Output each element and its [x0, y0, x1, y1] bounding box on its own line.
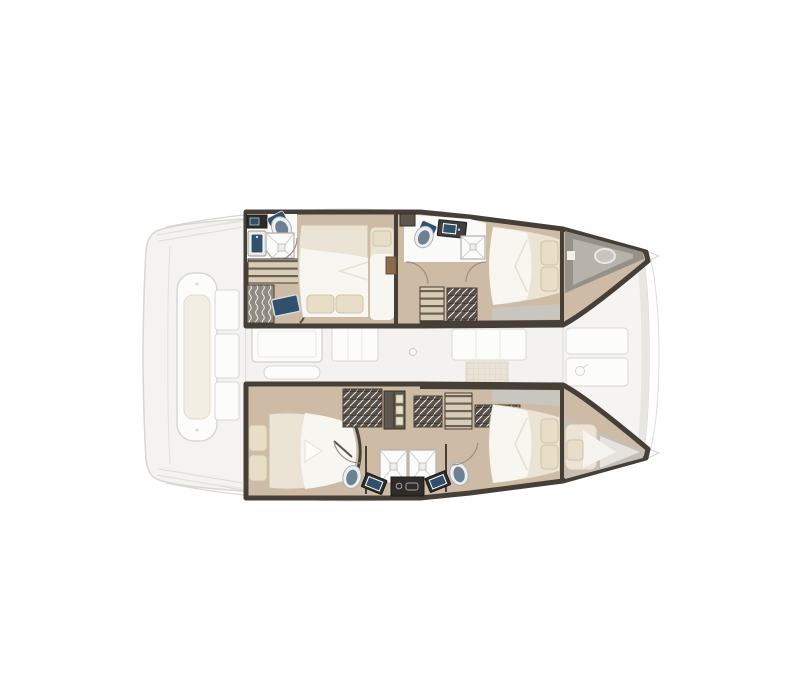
bench-seat — [264, 366, 320, 379]
pillow — [567, 440, 583, 460]
galley-island — [332, 326, 378, 361]
port-hull — [246, 210, 648, 326]
cockpit-seats — [215, 290, 239, 420]
inboard-bulkhead-band — [420, 323, 562, 324]
pillow — [249, 455, 267, 481]
saloon — [246, 326, 563, 389]
bench-fitting — [196, 429, 199, 432]
bed-duvet — [489, 227, 531, 305]
bench-cushion — [184, 295, 210, 419]
bench-fitting — [196, 283, 199, 286]
wardrobe-shelves — [248, 259, 302, 283]
starboard-hull — [246, 384, 648, 498]
companionway-steps — [420, 287, 444, 322]
cockpit — [143, 219, 246, 491]
pillow — [541, 445, 558, 469]
shower-drain — [278, 244, 285, 251]
shower-drain — [419, 463, 426, 470]
pillow — [307, 295, 334, 313]
pillow — [249, 425, 267, 451]
deck-panel — [566, 328, 628, 354]
counter-unit — [452, 329, 526, 360]
shelf-unit — [384, 391, 405, 429]
forepeak-fitting — [567, 251, 575, 260]
shower-drain — [390, 463, 397, 470]
double-bed — [489, 405, 561, 483]
shower-drain — [470, 244, 476, 250]
floor-plan-canvas — [0, 0, 800, 700]
inboard-bulkhead-band — [420, 386, 562, 387]
vanity-sink-icon — [250, 218, 259, 225]
bow-bridle-curve — [650, 258, 659, 451]
door-knob — [410, 349, 417, 356]
shower-tray — [461, 236, 485, 259]
wood-door — [386, 257, 396, 274]
storage-locker — [447, 288, 477, 321]
port-aft-head — [247, 210, 297, 262]
pillow — [541, 267, 558, 291]
pillow — [541, 241, 558, 265]
faucet-dot — [256, 236, 258, 238]
pillow — [373, 231, 391, 246]
deck-hatch — [595, 249, 615, 263]
corridor-cabinet — [400, 214, 415, 226]
center-console — [391, 477, 424, 496]
pillow — [336, 295, 363, 313]
pillow — [541, 419, 558, 443]
double-bed — [489, 227, 561, 305]
bed-duvet — [489, 405, 531, 483]
companionway-steps — [445, 393, 472, 429]
hanging-locker — [247, 285, 274, 323]
hanging-locker — [343, 389, 382, 427]
double-bed — [298, 225, 368, 317]
floor-plan-drawing — [0, 0, 800, 700]
storage-locker — [414, 396, 442, 427]
